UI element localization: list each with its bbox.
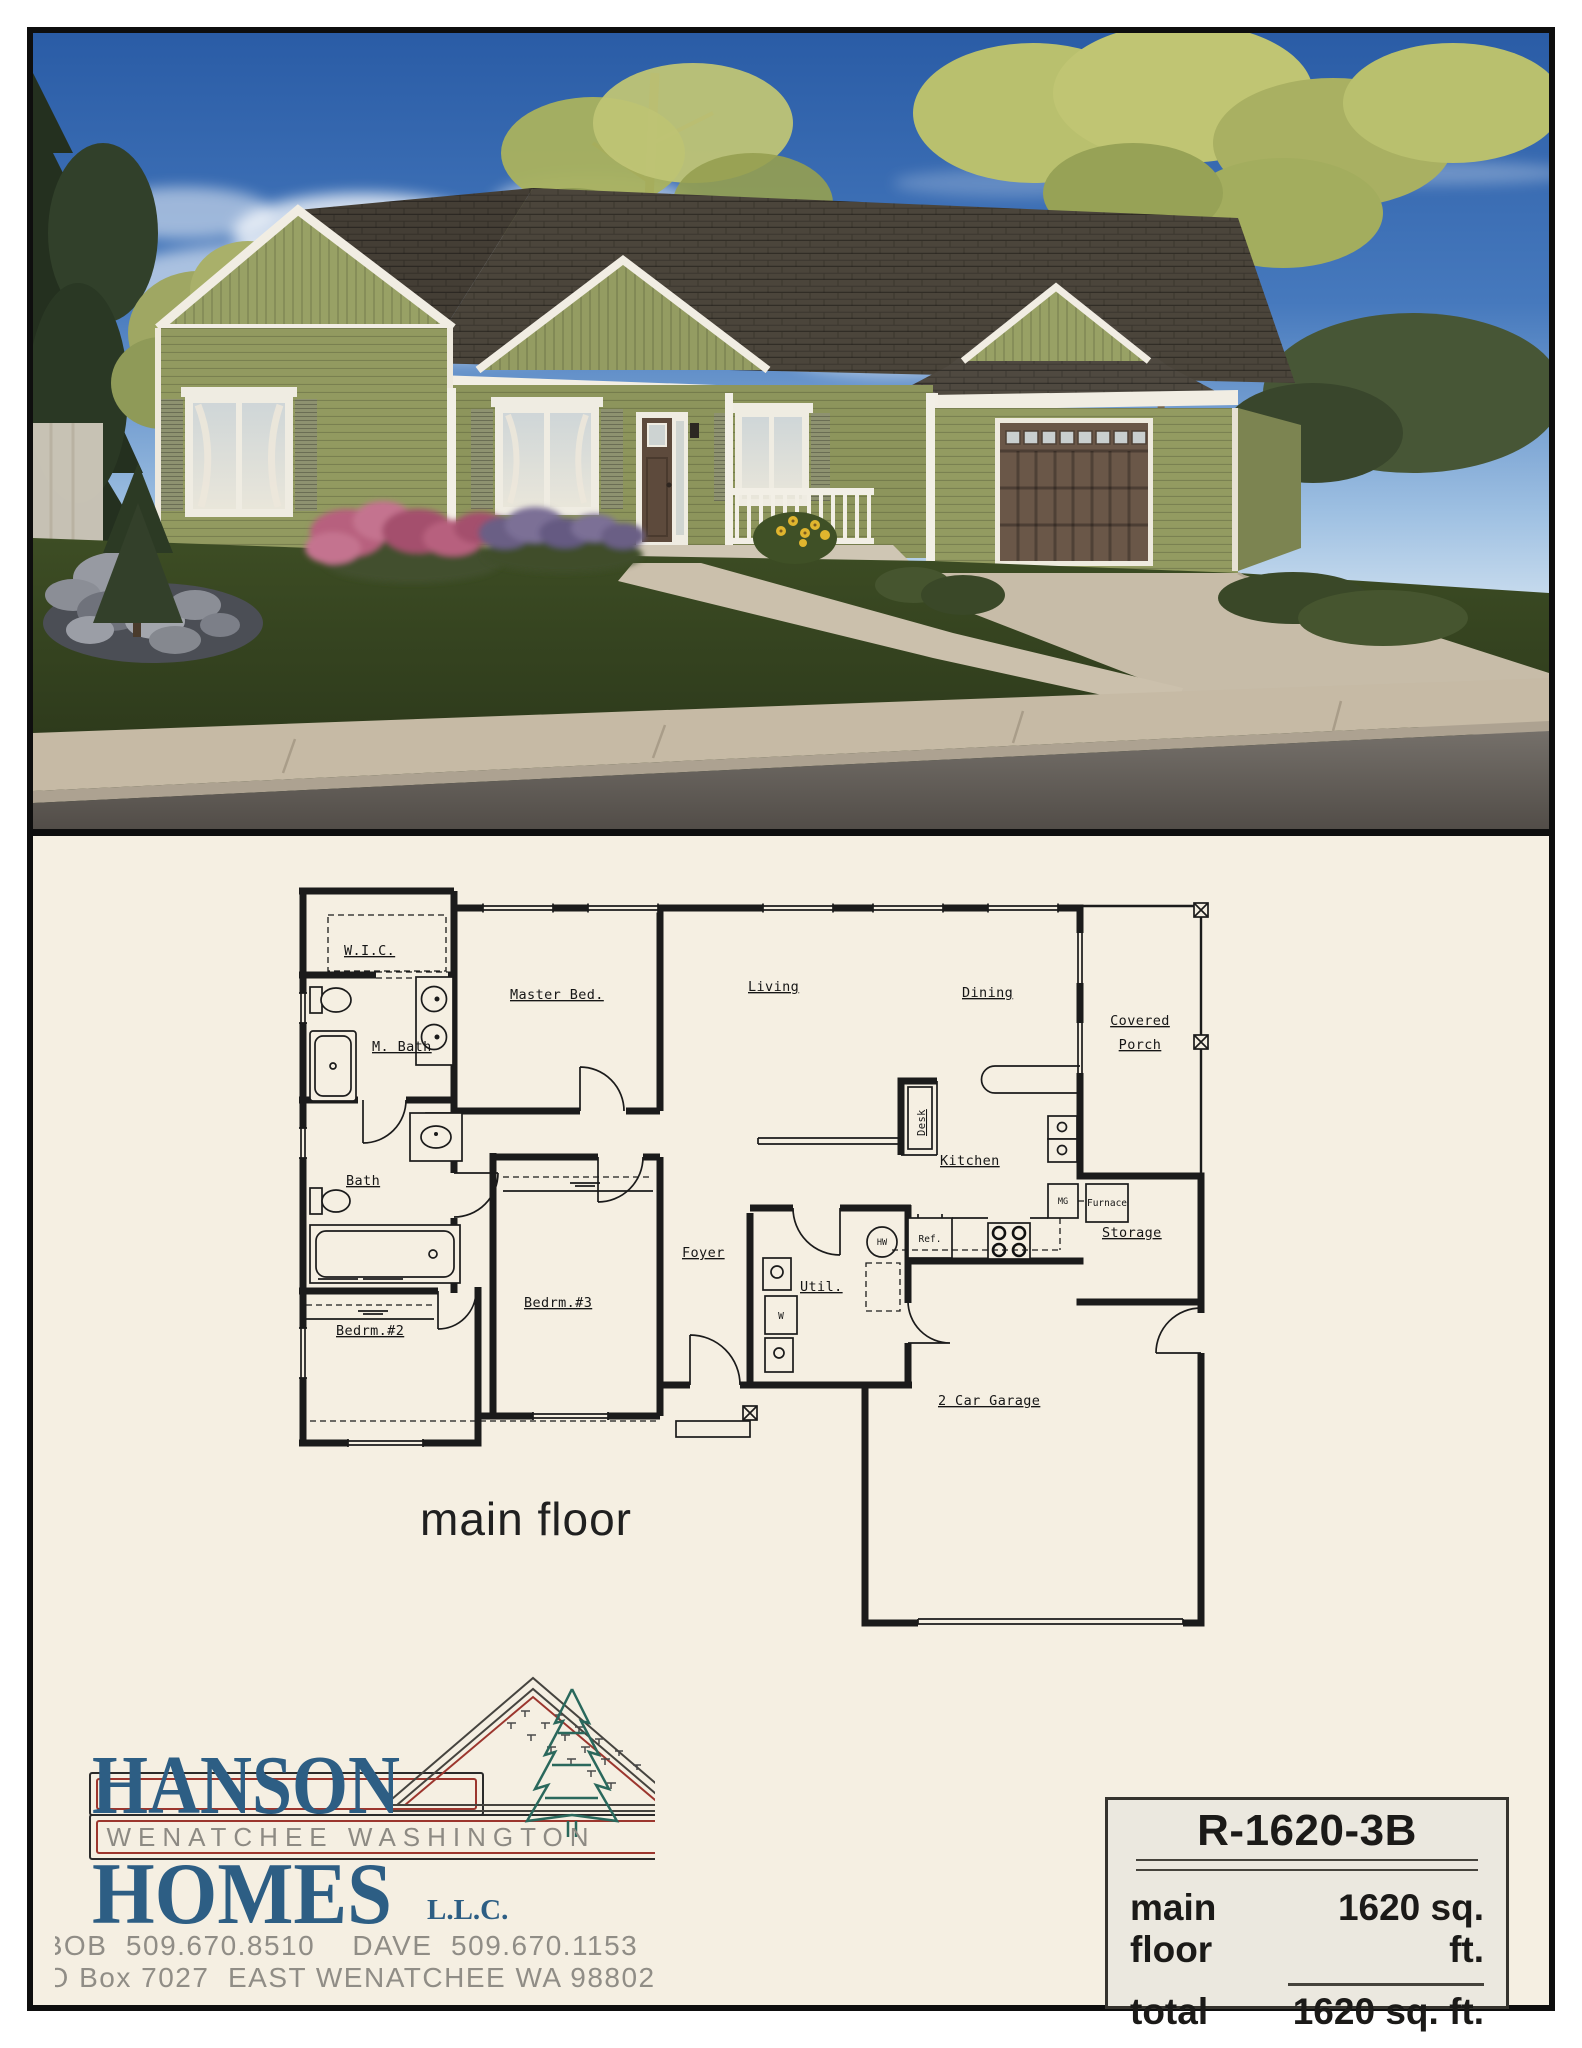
flyer-frame: W.I.C. M. Bath Master Bed. Bath Bedrm.#2… — [27, 27, 1555, 2011]
util-fixtures — [763, 1227, 900, 1372]
room-label-bed3: Bedrm.#3 — [524, 1295, 592, 1311]
flower-bed-pink — [305, 501, 506, 583]
front-step — [676, 1406, 757, 1437]
room-label-living: Living — [748, 979, 799, 995]
plan-title: main floor — [420, 1493, 632, 1545]
spec-divider — [1136, 1859, 1478, 1871]
logo-hanson: HANSON — [92, 1739, 400, 1832]
logo-contact-address: PO Box 7027 EAST WENATCHEE WA 98802 — [55, 1962, 655, 1993]
spec-value: 1620 sq. ft. — [1299, 1887, 1484, 1971]
room-label-porch-1: Covered — [1110, 1013, 1170, 1029]
logo-homes: HOMES — [92, 1846, 392, 1943]
hanson-homes-logo: HANSON WENATCHEE WASHINGTON HOMES L.L.C.… — [55, 1593, 655, 2005]
room-label-dining: Dining — [962, 985, 1013, 1001]
garage-door — [995, 418, 1153, 566]
room-label-bed2: Bedrm.#2 — [336, 1323, 404, 1339]
room-label-bath: Bath — [346, 1173, 380, 1189]
flyer-page: W.I.C. M. Bath Master Bed. Bath Bedrm.#2… — [0, 0, 1582, 2048]
logo-llc: L.L.C. — [427, 1894, 508, 1926]
spec-row-total: total 1620 sq. ft. — [1130, 1983, 1484, 2033]
room-label-master: Master Bed. — [510, 987, 604, 1003]
room-label-garage: 2 Car Garage — [938, 1393, 1040, 1409]
floor-plan: W.I.C. M. Bath Master Bed. Bath Bedrm.#2… — [288, 873, 1228, 1633]
spec-row-main-floor: main floor 1620 sq. ft. — [1130, 1887, 1484, 1971]
bed2-closet — [306, 1305, 434, 1319]
room-label-kitchen: Kitchen — [940, 1153, 1000, 1169]
spec-label: main floor — [1130, 1887, 1299, 1971]
room-label-desk: Desk — [916, 1109, 928, 1136]
house-photo-rendering — [33, 33, 1549, 836]
living-half-wall — [758, 1138, 901, 1144]
room-label-wic: W.I.C. — [344, 943, 395, 959]
room-label-storage: Storage — [1102, 1225, 1162, 1241]
room-label-furnace: Furnace — [1087, 1198, 1127, 1209]
room-label-porch-2: Porch — [1119, 1037, 1162, 1053]
room-label-mbath: M. Bath — [372, 1039, 432, 1055]
spec-label: total — [1130, 1991, 1208, 2033]
plan-model-number: R-1620-3B — [1108, 1806, 1506, 1856]
bath-fixtures — [310, 1113, 462, 1283]
fixture-label-mg: MG — [1058, 1197, 1068, 1207]
room-label-foyer: Foyer — [682, 1245, 725, 1261]
logo-contact-phone: BOB 509.670.8510 DAVE 509.670.1153 — [55, 1930, 638, 1961]
spec-table: R-1620-3B main floor 1620 sq. ft. total … — [1105, 1797, 1509, 2009]
spec-value: 1620 sq. ft. — [1288, 1983, 1484, 2033]
fixture-label-washer: W — [778, 1311, 784, 1322]
fixture-label-ref: Ref. — [919, 1234, 942, 1245]
room-label-util: Util. — [800, 1279, 843, 1295]
fixture-label-hw: HW — [877, 1238, 888, 1248]
sunflowers — [753, 512, 837, 564]
